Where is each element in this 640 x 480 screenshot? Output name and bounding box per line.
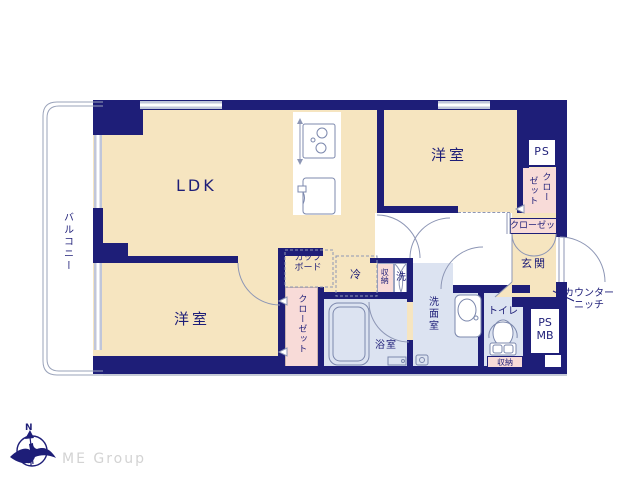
hallway-area3	[453, 263, 512, 285]
room-label-bedroom-bottom: 洋室	[174, 311, 210, 328]
wall	[523, 100, 567, 140]
label-toilet-storage: 収納	[487, 358, 523, 367]
closet-under-bedroom	[458, 212, 510, 234]
room-label-balcony: バルコニー	[61, 212, 73, 272]
wall	[93, 208, 103, 245]
wall	[318, 287, 324, 374]
label-ps: PS	[527, 146, 557, 159]
compass-north-label: N	[25, 423, 33, 433]
wall	[517, 110, 523, 213]
room-label-toilet: トイレ	[483, 306, 523, 318]
window	[94, 135, 102, 208]
wall	[103, 256, 238, 263]
ps-mb-line1: PS	[538, 316, 552, 329]
room-label-washroom: 洗面室	[426, 296, 438, 332]
cupboard-line2: ボード	[294, 263, 321, 273]
floor-plan: バルコニー LDK 洋室 洋室 PS クロー ゼット クローゼット 玄関 カウン…	[0, 0, 640, 480]
counter-niche-line1: カウンター	[564, 288, 614, 299]
label-closet-bottom-left: クローゼット	[296, 294, 306, 354]
label-storage-strip: 収納	[380, 268, 389, 284]
wall	[93, 100, 143, 135]
label-closet-tr-col1: クロー	[540, 172, 550, 202]
room-label-entrance: 玄関	[521, 258, 547, 271]
company-logo-text: ME Group	[62, 451, 146, 467]
room-label-bedroom-top: 洋室	[431, 147, 467, 164]
window	[140, 101, 222, 109]
bathroom-area	[324, 299, 407, 366]
wall	[478, 293, 484, 366]
entrance-door-opening	[556, 237, 567, 282]
label-cupboard: カップボード	[284, 253, 332, 274]
cupboard-line1: カップ	[294, 253, 321, 263]
wall	[453, 285, 530, 293]
label-ps-mb: PSMB	[529, 317, 561, 342]
window	[438, 101, 490, 109]
room-label-bathroom: 浴室	[375, 340, 397, 352]
wall	[324, 292, 407, 299]
wall	[377, 100, 384, 213]
label-washer: 洗	[396, 272, 406, 284]
label-fridge: 冷	[350, 269, 361, 282]
wall-notch	[545, 355, 561, 367]
wall	[93, 356, 285, 374]
label-counter-niche: カウンターニッチ	[560, 288, 618, 311]
counter-niche-line2: ニッチ	[574, 300, 604, 311]
wall	[407, 263, 413, 302]
window	[94, 263, 102, 350]
wall	[377, 206, 458, 213]
kitchen-counter-area	[293, 112, 341, 215]
washroom-area2	[453, 293, 478, 366]
room-label-ldk: LDK	[176, 177, 217, 195]
ps-mb-line2: MB	[536, 329, 553, 342]
label-closet-bar: クローゼット	[510, 221, 557, 231]
wall	[407, 340, 413, 366]
label-closet-tr-col2: ゼット	[527, 176, 537, 206]
